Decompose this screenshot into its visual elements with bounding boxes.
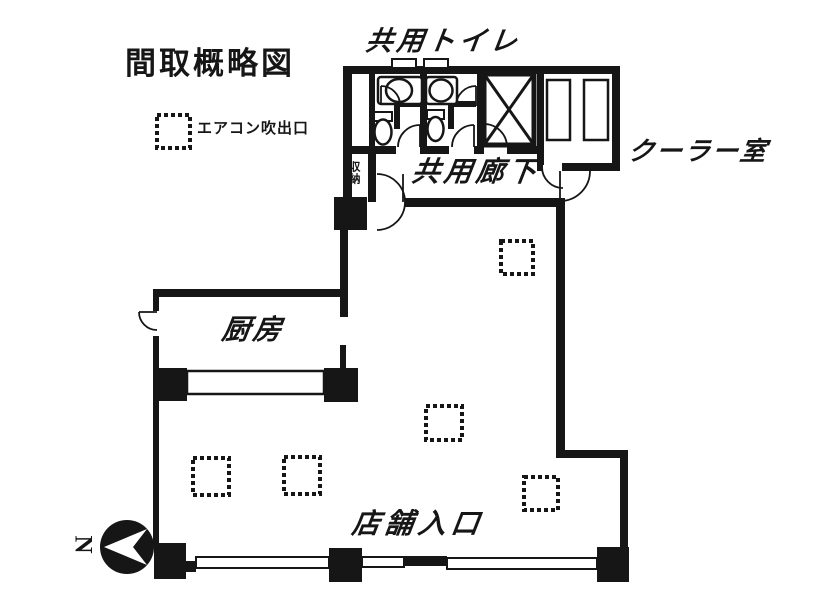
wall bbox=[556, 198, 565, 458]
wall bbox=[612, 66, 620, 170]
vent-stub bbox=[392, 59, 416, 68]
wall bbox=[153, 336, 159, 546]
wall bbox=[153, 289, 347, 297]
air-outlet-icon bbox=[426, 406, 462, 440]
room-label-cooler-room: クーラー室 bbox=[626, 139, 770, 165]
window-wall bbox=[362, 557, 404, 567]
wall bbox=[153, 289, 159, 311]
floorplan-page: 間取概略図 エアコン吹出口 共用トイレ クーラー室 共用廊下 収納 厨房 店舗入… bbox=[0, 0, 825, 606]
air-outlet-icon bbox=[193, 458, 229, 495]
page-title: 間取概略図 bbox=[125, 48, 295, 79]
wall bbox=[369, 70, 375, 150]
entrance-door bbox=[404, 556, 447, 566]
door-swing-arc bbox=[398, 125, 420, 147]
air-outlet-icon bbox=[524, 477, 558, 510]
compass-north-label: N bbox=[71, 535, 96, 553]
wall bbox=[537, 66, 544, 165]
wall bbox=[340, 345, 346, 370]
pillar bbox=[154, 543, 186, 579]
window-wall bbox=[196, 557, 329, 568]
toilet-icon bbox=[375, 120, 392, 145]
pillar bbox=[324, 368, 358, 402]
door-swing-arc bbox=[139, 312, 157, 330]
sink-basin bbox=[430, 80, 453, 102]
kitchen-counter bbox=[187, 371, 324, 394]
air-outlet-icon bbox=[284, 457, 320, 494]
cooler-units bbox=[547, 80, 608, 140]
door-swing-arc bbox=[377, 174, 405, 230]
wall bbox=[556, 450, 628, 458]
wall bbox=[562, 163, 620, 171]
window-walls bbox=[196, 557, 597, 569]
room-label-storage: 収納 bbox=[348, 161, 359, 185]
wall bbox=[340, 230, 348, 317]
room-label-shared-corridor: 共用廊下 bbox=[410, 159, 542, 187]
air-outlet-icon bbox=[501, 241, 533, 274]
wall bbox=[343, 66, 352, 207]
north-arrow-icon bbox=[100, 520, 154, 574]
pillar bbox=[329, 548, 362, 582]
vent-stub bbox=[424, 59, 448, 68]
cooler-unit bbox=[584, 80, 608, 140]
wall bbox=[368, 152, 376, 202]
door-swing-arc bbox=[560, 171, 590, 201]
pillar bbox=[158, 368, 187, 401]
elevator-shaft-x bbox=[484, 74, 534, 145]
room-label-kitchen: 厨房 bbox=[220, 317, 286, 345]
pillar bbox=[597, 547, 629, 582]
legend-air-outlet-label: エアコン吹出口 bbox=[197, 122, 309, 137]
cooler-unit bbox=[547, 80, 570, 140]
room-label-store-entrance: 店舗入口 bbox=[350, 511, 486, 539]
wall bbox=[186, 561, 196, 572]
pillar bbox=[334, 197, 367, 230]
room-label-shared-toilet: 共用トイレ bbox=[364, 28, 523, 55]
wall bbox=[405, 198, 563, 207]
toilet-icon bbox=[428, 117, 444, 141]
air-outlet-icon bbox=[157, 115, 190, 148]
wall bbox=[620, 450, 628, 550]
window-wall bbox=[447, 558, 597, 569]
door-swing-arc bbox=[452, 125, 474, 147]
